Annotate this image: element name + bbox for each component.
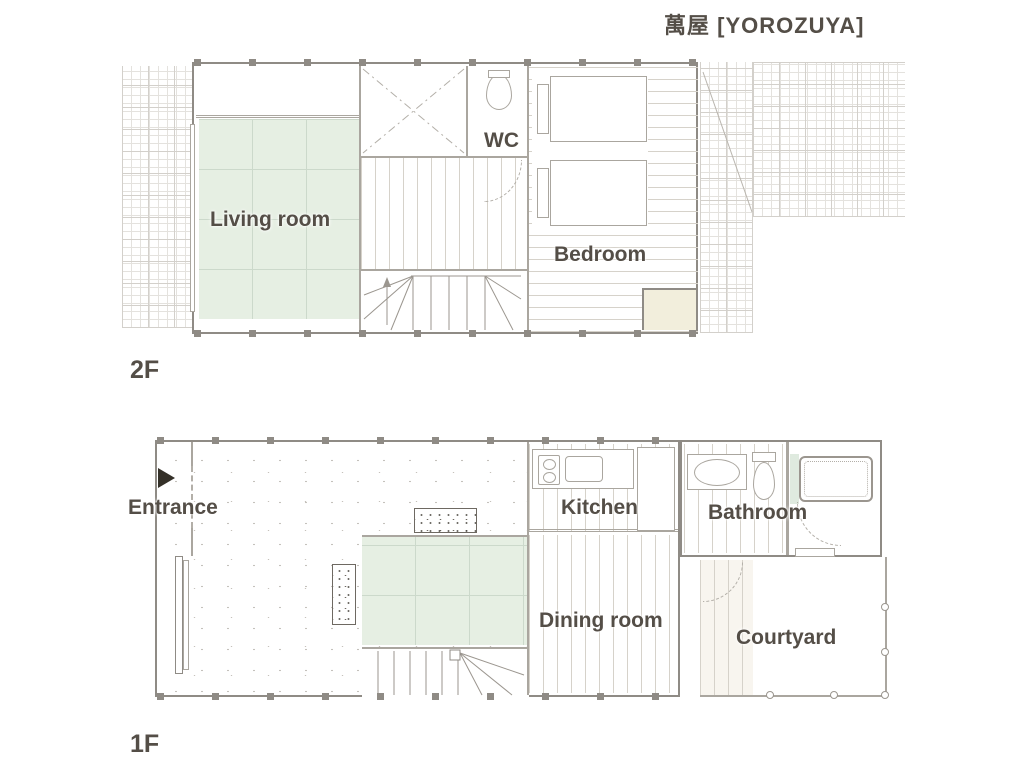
bed-icon (550, 76, 647, 142)
sliding-door-west (175, 556, 183, 674)
bed-pillow (537, 168, 549, 218)
posts-top-2f (194, 59, 696, 66)
toilet-icon (486, 74, 512, 110)
room-bedroom (529, 66, 698, 332)
bed-icon (550, 160, 647, 226)
room-label-living: Living room (210, 209, 330, 230)
stairs-icon (361, 271, 525, 332)
kitchen-sink-icon (565, 456, 603, 482)
room-label-wc: WC (484, 130, 519, 151)
window-living-west (190, 124, 195, 312)
toilet-tank (488, 70, 510, 78)
stove-icon (538, 455, 560, 485)
stairs-1f (362, 647, 529, 697)
room-label-dining: Dining room (539, 610, 663, 631)
roof-grid-right (753, 62, 905, 217)
posts-top-1f (157, 437, 678, 444)
stove-burner (543, 459, 556, 470)
bath-tile (790, 454, 799, 504)
wash-basin-icon (694, 459, 740, 486)
balcony-2f (196, 66, 360, 118)
floor-label-2f: 2F (130, 358, 159, 383)
toilet-icon (753, 462, 775, 500)
room-label-bedroom: Bedroom (554, 244, 646, 265)
wall-genkan-low (191, 528, 193, 556)
fence-post-circle (881, 648, 889, 656)
entrance-arrow-icon (158, 468, 175, 488)
roof-slope-line (700, 66, 754, 216)
floor2-plan: Living room WC (0, 0, 1024, 420)
building-2f: Living room WC (192, 62, 698, 334)
toilet-tank (752, 452, 776, 462)
stone-mat (332, 564, 356, 625)
bathtub-icon (799, 456, 873, 502)
fence-post-circle (830, 691, 838, 699)
stairs-2f (361, 269, 527, 332)
bathroom-wing: Bathroom (680, 440, 882, 557)
sliding-door-west-2 (183, 560, 189, 670)
toilet-1f (750, 452, 780, 504)
vanity-counter (687, 454, 747, 490)
kitchen-counter (532, 449, 634, 489)
fence-east (885, 557, 887, 697)
posts-bottom-1f (157, 693, 678, 700)
tatami-1f (362, 535, 529, 645)
void-x-icon (361, 66, 466, 156)
building-1f: Kitchen Dining room (155, 440, 680, 697)
bathtub-inner (804, 461, 868, 497)
room-label-kitchen: Kitchen (561, 497, 638, 518)
fence-post-circle (766, 691, 774, 699)
floor-plan-canvas: 萬屋 [YOROZUYA] Living room (0, 0, 1024, 768)
fence-post-circle (881, 603, 889, 611)
stairs-up-arrow (383, 277, 391, 287)
posts-bottom-2f (194, 330, 696, 337)
floor1-plan: Kitchen Dining room Entrance (0, 420, 1024, 768)
room-label-bathroom: Bathroom (708, 502, 807, 523)
courtyard: Courtyard (700, 557, 887, 697)
fence-post-circle (881, 691, 889, 699)
bath-room (789, 444, 880, 553)
bath-window (795, 548, 835, 557)
roof-grid-left (122, 66, 192, 328)
closet (642, 288, 698, 330)
fence-south (700, 695, 887, 697)
floor-label-1f: 1F (130, 732, 159, 757)
room-label-entrance: Entrance (128, 497, 218, 518)
kitchen-cabinet (637, 447, 675, 531)
stone-mat (414, 508, 477, 533)
void-open-to-below (361, 66, 468, 158)
bed-pillow (537, 84, 549, 134)
stove-burner (543, 472, 556, 483)
room-label-courtyard: Courtyard (736, 627, 836, 648)
wall-genkan (191, 442, 193, 466)
stairs-icon (362, 649, 527, 697)
